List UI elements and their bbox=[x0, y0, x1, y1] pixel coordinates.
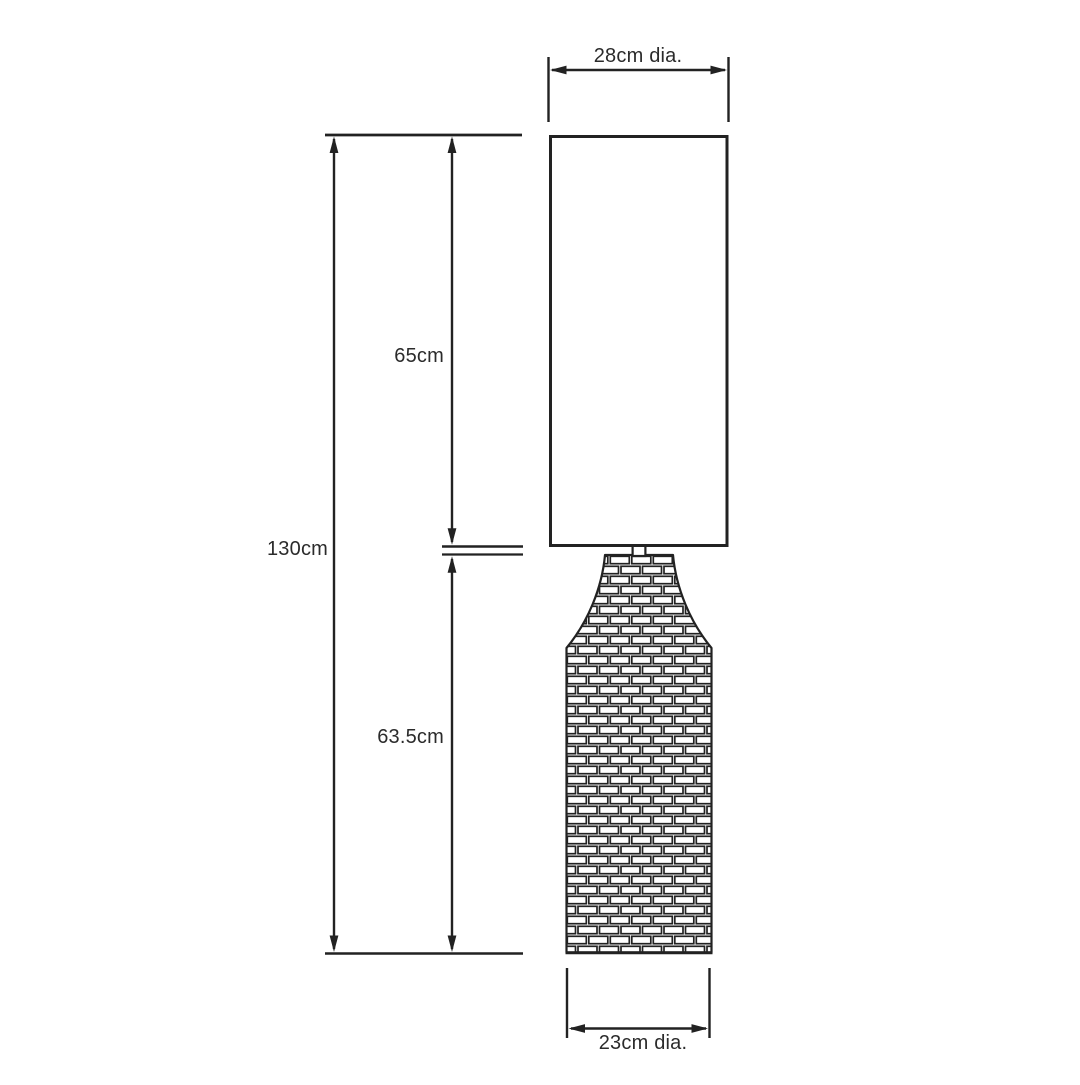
base-diameter-label: 23cm dia. bbox=[599, 1032, 688, 1054]
arrowhead-left-icon bbox=[550, 66, 567, 75]
arrowhead-up-icon bbox=[448, 556, 457, 573]
arrowhead-down-icon bbox=[448, 528, 457, 545]
arrowhead-up-icon bbox=[330, 137, 339, 154]
dimension-total-height: 130cm bbox=[267, 135, 523, 954]
diagram-svg: 28cm dia. 130cm 65cm 63.5cm 23cm dia. bbox=[0, 0, 1080, 1080]
lamp-shade bbox=[551, 137, 728, 546]
base-outline bbox=[567, 555, 712, 953]
dimension-shade-diameter: 28cm dia. bbox=[549, 45, 729, 122]
arrowhead-right-icon bbox=[711, 66, 728, 75]
shade-height-label: 65cm bbox=[394, 345, 444, 367]
shade-diameter-label: 28cm dia. bbox=[594, 45, 683, 67]
dimension-base-diameter: 23cm dia. bbox=[567, 968, 710, 1054]
dimension-base-height: 63.5cm bbox=[377, 555, 523, 953]
arrowhead-up-icon bbox=[448, 137, 457, 154]
arrowhead-down-icon bbox=[330, 936, 339, 953]
lamp-base bbox=[566, 555, 713, 953]
base-height-label: 63.5cm bbox=[377, 726, 444, 748]
total-height-label: 130cm bbox=[267, 538, 328, 560]
arrowhead-left-icon bbox=[569, 1024, 586, 1033]
arrowhead-right-icon bbox=[692, 1024, 709, 1033]
dimension-shade-height: 65cm bbox=[394, 137, 523, 547]
lamp-dimension-diagram: 28cm dia. 130cm 65cm 63.5cm 23cm dia. bbox=[0, 0, 1080, 1080]
arrowhead-down-icon bbox=[448, 936, 457, 953]
